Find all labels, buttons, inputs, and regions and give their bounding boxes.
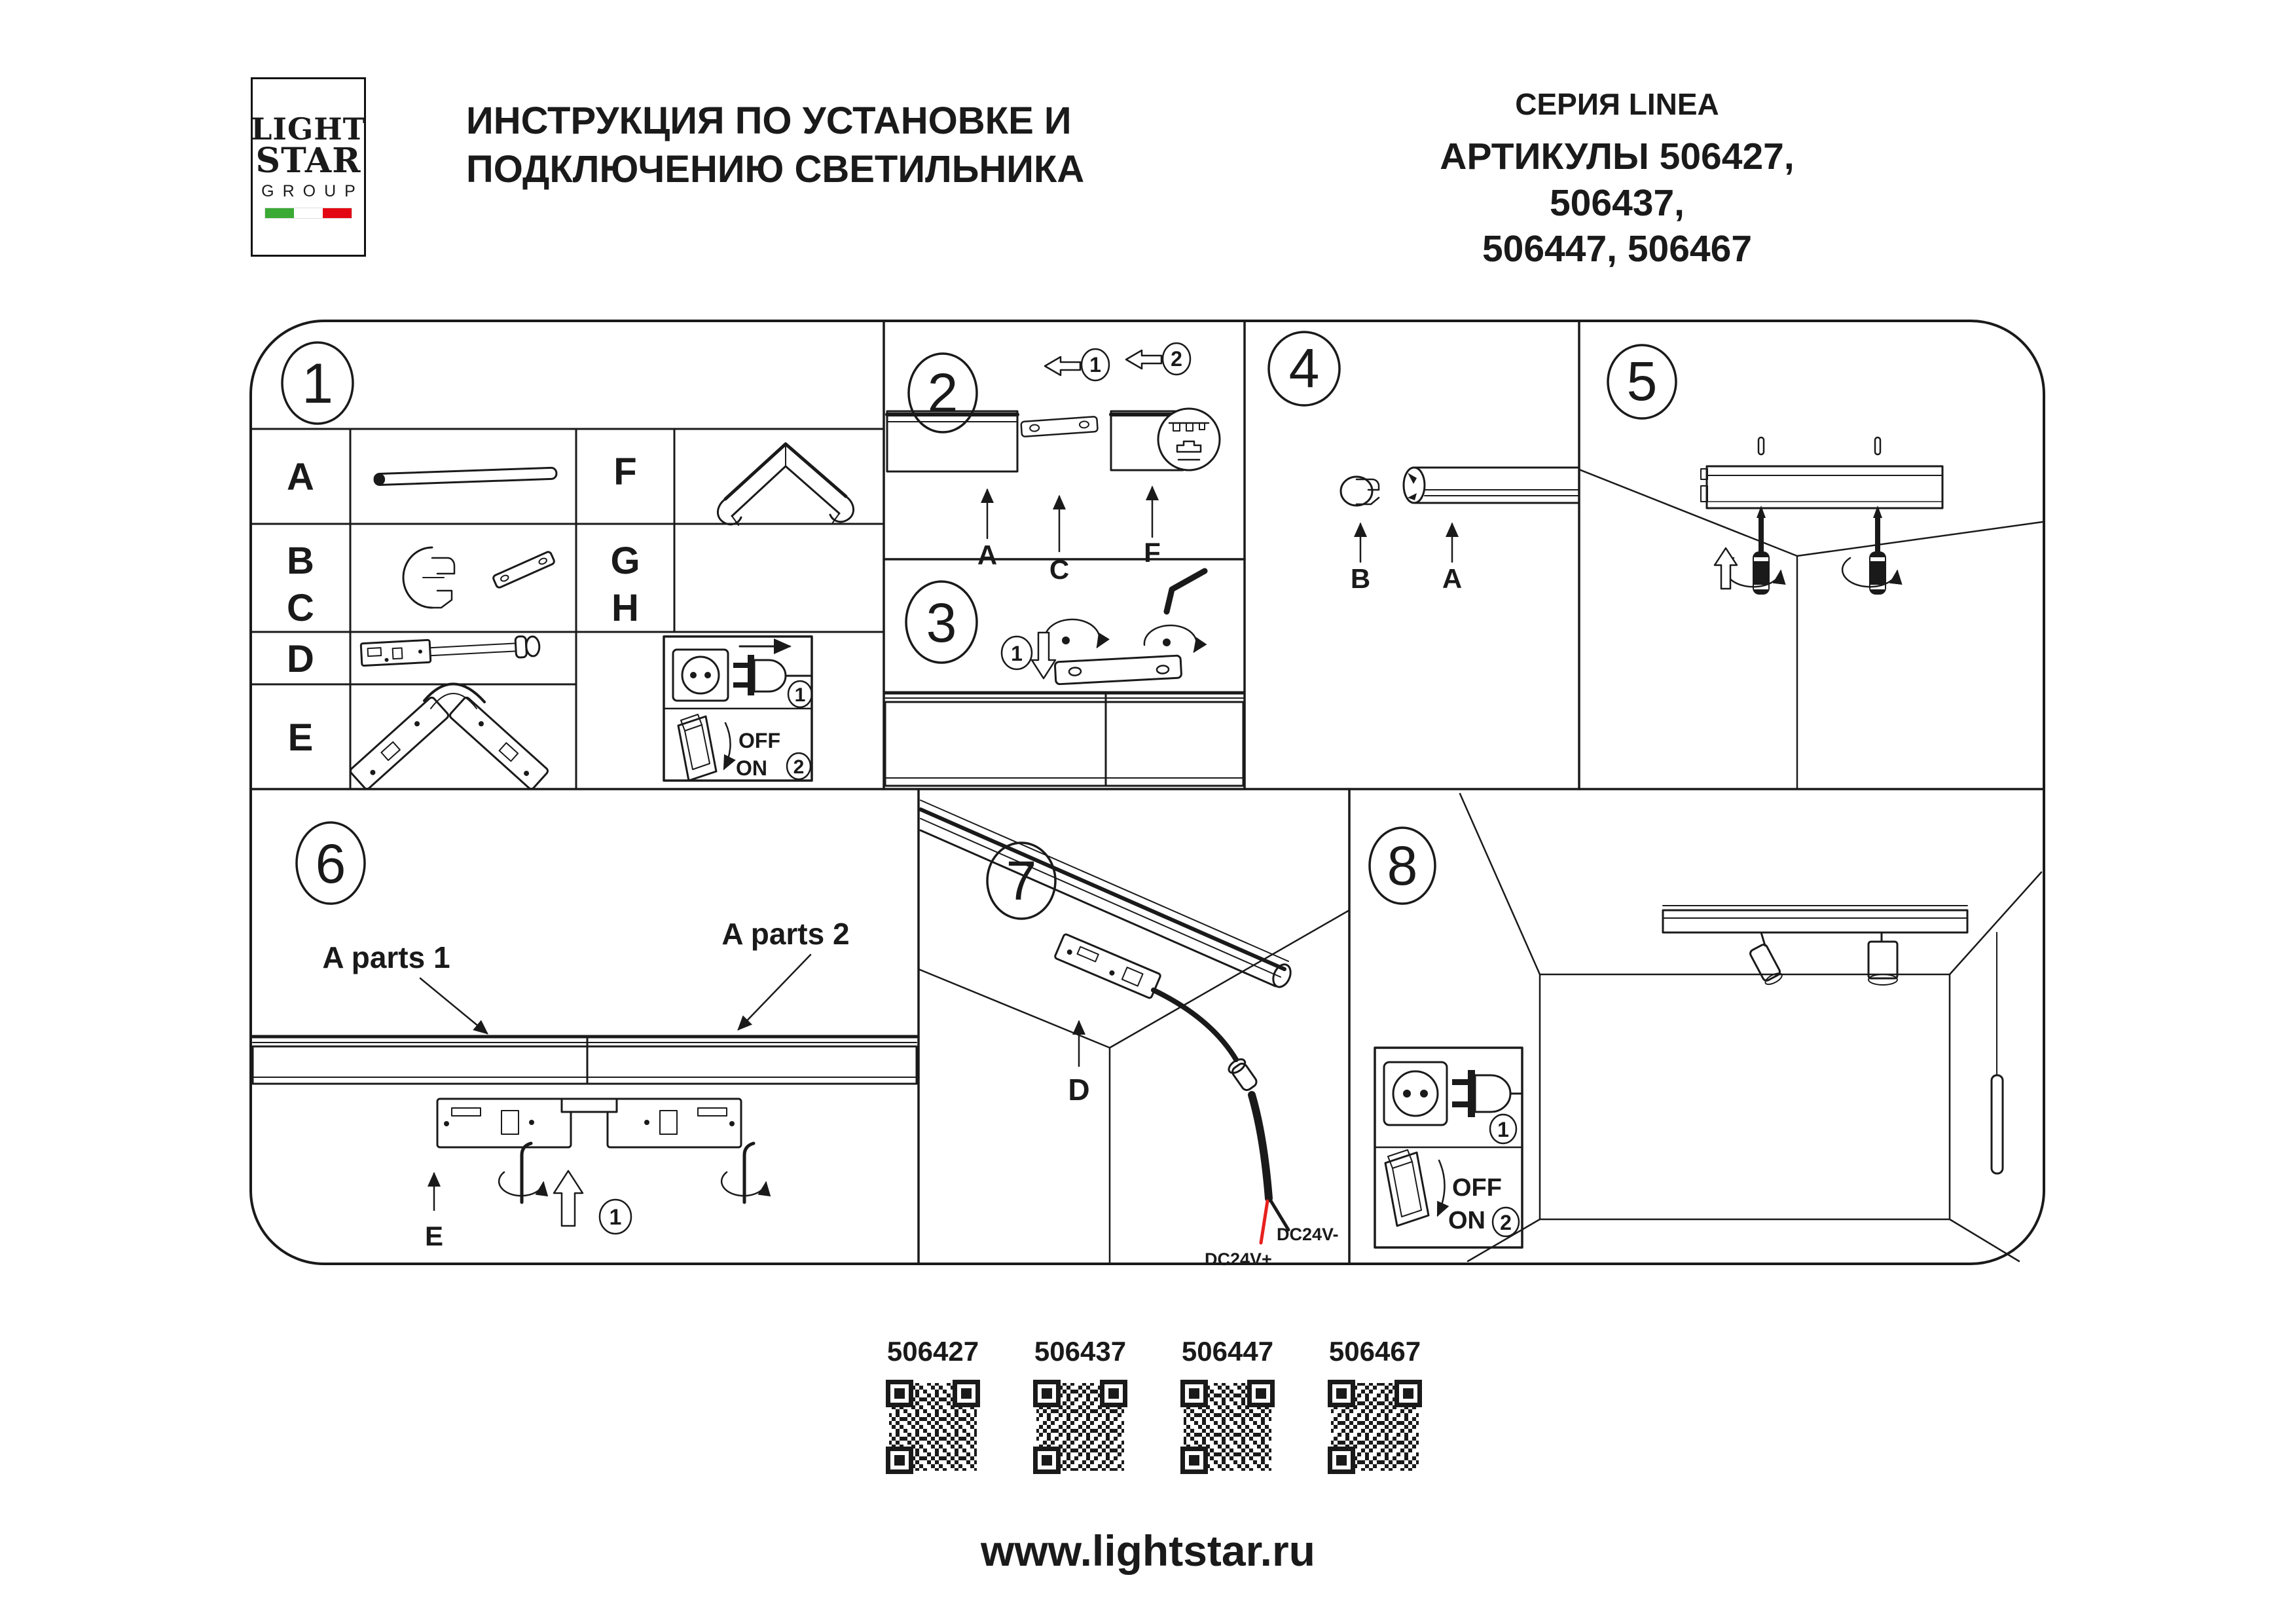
lock-plate [1055,655,1182,684]
panel-1-number: 1 [302,352,333,415]
link-connector-e [437,1099,741,1147]
row-label-c: C [287,587,314,629]
panel-8-number: 8 [1387,835,1418,896]
a-parts-1-label: A parts 1 [322,940,450,974]
step-1-number: 1 [1497,1118,1509,1141]
panel-3-number: 3 [926,592,957,654]
part-f-corner [718,444,853,525]
on-label: ON [736,756,767,780]
socket-icon [673,650,728,701]
feed-connector-d [1054,934,1161,999]
panel-7-label-d: D [1068,1073,1089,1107]
panel-3-step-1: 1 [1011,642,1023,665]
allen-key-icon [1167,571,1205,612]
row-label-b: B [287,540,314,582]
step-2-number: 2 [793,756,805,778]
qr-code-icon [1178,1378,1277,1476]
qr-item-506427: 506427 [884,1336,982,1476]
switch-icon [678,714,731,781]
panel-6-number: 6 [316,833,346,895]
step-2-number: 2 [1500,1211,1512,1234]
panel-4-number: 4 [1289,337,1320,399]
panel-7-power-feed: 7 D [919,800,1349,1269]
part-c-plate [492,551,555,588]
power-cable [1154,990,1288,1243]
room-perspective [1460,794,2041,1261]
website-url: www.lightstar.ru [0,1526,2296,1576]
panel-8-room-overview: 8 [1370,794,2041,1261]
socket-icon [1384,1062,1447,1125]
panel-2-label-a: A [977,540,997,570]
col-label-g: G [610,540,640,582]
plug-icon [1452,1070,1521,1117]
spot-light-icon [1749,932,1783,987]
row-label-a: A [287,456,314,498]
off-label: OFF [738,729,780,752]
col-label-h: H [611,587,639,629]
panel-4-end-cap: 4 B A [1269,332,1578,594]
dc24v-plus-label: DC24V+ [1205,1249,1272,1269]
push-up-arrow-icon [1715,548,1737,589]
qr-item-506447: 506447 [1178,1336,1277,1476]
panel-2-step-2: 2 [1171,347,1182,371]
panel-2-label-f: F [1144,537,1161,568]
panel-4-label-a: A [1442,563,1462,594]
qr-article-label: 506447 [1178,1336,1277,1367]
screwdriver-icon-2 [1842,437,1897,595]
panel-4-label-b: B [1351,563,1370,594]
qr-item-506467: 506467 [1326,1336,1424,1476]
qr-code-icon [884,1378,982,1476]
hex-key-icon [499,1143,543,1202]
light-bar [1701,466,1942,508]
power-steps-box: 1 OFF ON 2 [1375,1048,1522,1247]
profile-a-tube [1404,468,1578,503]
qr-item-506437: 506437 [1031,1336,1129,1476]
ceiling-track [1663,906,1967,932]
qr-article-label: 506437 [1031,1336,1129,1367]
row-label-e: E [288,716,314,759]
panel-1-parts-table: 1 A B C D E F G H [251,342,884,790]
hex-key-icon-2 [721,1143,766,1202]
panel-3-fix-plate: 3 1 [885,571,1243,786]
push-up-arrow-icon [554,1171,583,1226]
diagram-frame [251,321,2044,1264]
cylinder-light-icon [1868,932,1897,985]
dc24v-minus-label: DC24V- [1277,1225,1339,1244]
panel-2-join-profiles: 2 1 2 A [887,343,1220,585]
power-steps-box: 1 OFF ON 2 [664,637,812,781]
panel-2-step-1: 1 [1089,353,1101,377]
qr-code-icon [1326,1378,1424,1476]
a-parts-2-label: A parts 2 [721,917,849,951]
panel-5-ceiling-mount: 5 [1579,345,2043,788]
part-a-profile [374,468,556,485]
panel-2-label-c: C [1049,554,1069,585]
press-down-arrow-icon [1032,633,1055,678]
panel-5-number: 5 [1627,350,1658,412]
joined-track [253,1037,917,1084]
pendant-light-icon [1992,932,2003,1173]
qr-section: 506427 506437 506447 506467 [884,1336,1424,1476]
row-label-d: D [287,638,314,680]
panel-6-step-1: 1 [610,1205,622,1230]
part-b-cap [403,547,454,608]
switch-icon [1385,1150,1445,1226]
cap-b [1341,477,1379,506]
slide-arrow-2-icon [1126,350,1161,369]
on-label: ON [1448,1207,1485,1234]
qr-code-icon [1031,1378,1129,1476]
slanted-track [920,800,1294,989]
col-label-f: F [613,451,636,493]
off-label: OFF [1452,1174,1502,1202]
panel-6-linear-connection: 6 A parts 1 A parts 2 [253,822,917,1251]
part-d-connector [361,634,539,665]
qr-article-label: 506467 [1326,1336,1424,1367]
screwdriver-icon [1726,437,1781,595]
step-1-number: 1 [795,684,806,706]
qr-article-label: 506427 [884,1336,982,1367]
manual-page: LIGHT STAR GROUP ИНСТРУКЦИЯ ПО УСТАНОВКЕ… [0,0,2296,1624]
slide-arrow-1-icon [1045,357,1080,375]
part-e-corner-link [349,684,549,790]
panel-6-label-e: E [425,1221,443,1251]
